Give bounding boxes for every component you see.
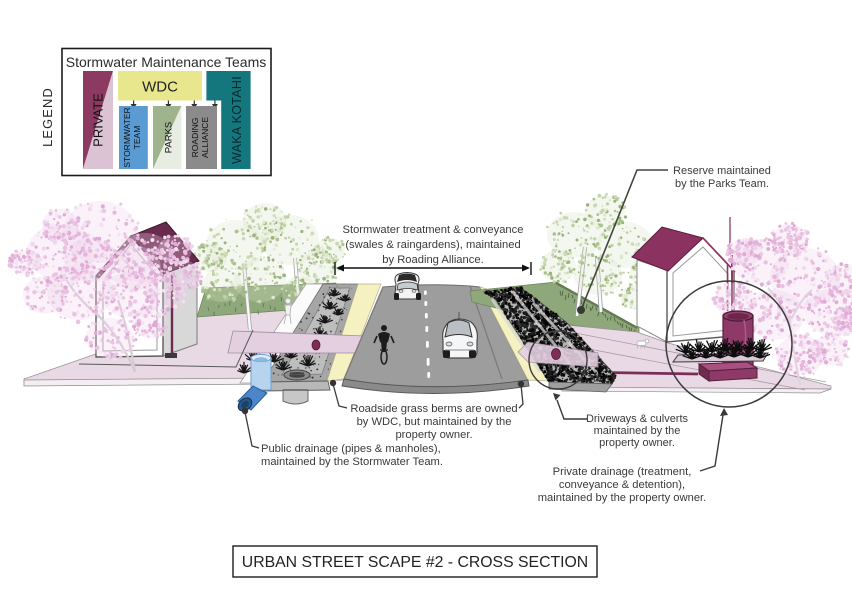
svg-text:PRIVATE: PRIVATE (91, 93, 106, 147)
svg-text:PARKS: PARKS (164, 122, 175, 154)
svg-text:Reserve maintained: Reserve maintained (673, 165, 771, 177)
svg-text:Private drainage (treatment,: Private drainage (treatment, (553, 466, 692, 478)
svg-text:by WDC, but maintained by the: by WDC, but maintained by the (357, 416, 512, 428)
svg-text:ROADINGALLIANCE: ROADINGALLIANCE (190, 117, 210, 158)
svg-text:Roadside grass berms are owned: Roadside grass berms are owned (350, 403, 517, 415)
svg-text:Stormwater treatment & conveya: Stormwater treatment & conveyance (343, 224, 524, 236)
svg-text:URBAN STREET SCAPE #2 - CROSS: URBAN STREET SCAPE #2 - CROSS SECTION (242, 554, 588, 571)
svg-text:Stormwater Maintenance Teams: Stormwater Maintenance Teams (66, 54, 267, 70)
svg-text:maintained by the Stormwater T: maintained by the Stormwater Team. (261, 456, 443, 468)
svg-text:by the Parks Team.: by the Parks Team. (675, 178, 769, 190)
svg-text:conveyance & detention),: conveyance & detention), (559, 479, 685, 491)
svg-text:by Roading Alliance.: by Roading Alliance. (382, 254, 483, 266)
svg-text:property owner.: property owner. (395, 429, 472, 441)
svg-text:Public drainage (pipes & manho: Public drainage (pipes & manholes), (261, 443, 441, 455)
svg-text:maintained by the property own: maintained by the property owner. (538, 492, 707, 504)
svg-text:property owner.: property owner. (599, 437, 675, 449)
svg-text:WAKA KOTAHI: WAKA KOTAHI (230, 76, 244, 164)
svg-text:(swales & raingardens), mainta: (swales & raingardens), maintained (345, 239, 520, 251)
svg-text:Driveways & culverts: Driveways & culverts (586, 413, 689, 425)
svg-text:maintained by the: maintained by the (594, 425, 681, 437)
svg-text:WDC: WDC (142, 79, 178, 96)
svg-text:LEGEND: LEGEND (40, 87, 55, 147)
